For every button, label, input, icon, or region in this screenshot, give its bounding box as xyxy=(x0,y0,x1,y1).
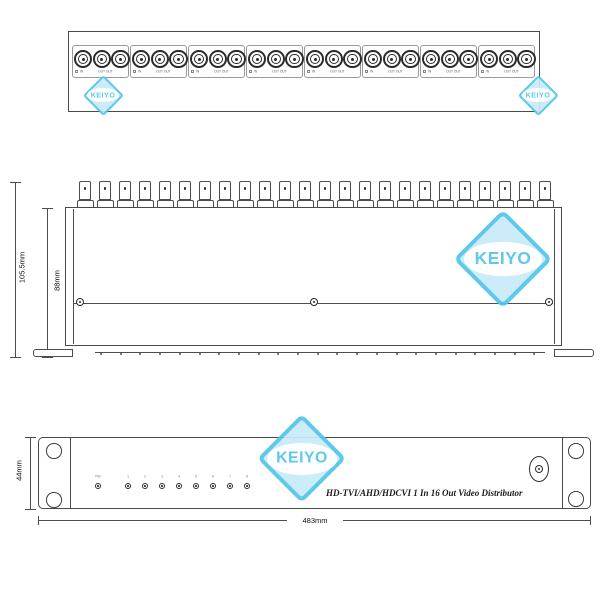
led-dot xyxy=(178,485,180,487)
led-dot xyxy=(212,485,214,487)
keiyo-logo: KEIYO xyxy=(518,75,558,115)
led-dot xyxy=(229,485,231,487)
bottom-plate-line xyxy=(95,352,545,353)
keiyo-logo-text: KEIYO xyxy=(258,450,346,468)
channel-led-label: 6 xyxy=(209,475,216,479)
dim-tick xyxy=(38,516,39,525)
mounting-flange-right xyxy=(554,349,594,357)
channel-led-label: 7 xyxy=(226,475,233,479)
channel-led-label: 8 xyxy=(243,475,250,479)
bottom-screw-dot xyxy=(179,353,181,355)
led-dot xyxy=(127,485,129,487)
bottom-screw-dot xyxy=(435,353,437,355)
bottom-screw-dot xyxy=(297,353,299,355)
bottom-screw-dot xyxy=(514,353,516,355)
rack-mount-hole xyxy=(46,492,62,508)
bottom-screw-dot xyxy=(317,353,319,355)
dim-line-front-height xyxy=(30,437,31,509)
bottom-screw-dot xyxy=(238,353,240,355)
channel-led-label: 3 xyxy=(158,475,165,479)
channel-led-label: 4 xyxy=(175,475,182,479)
channel-led-label: 5 xyxy=(192,475,199,479)
led-dot xyxy=(246,485,248,487)
rack-ear-separator-right xyxy=(562,438,563,508)
chassis-inner-wall-right xyxy=(554,209,555,344)
bottom-screw-dot xyxy=(100,353,102,355)
bottom-screw-dot xyxy=(455,353,457,355)
dim-tick xyxy=(25,437,36,438)
keiyo-logo: KEIYO xyxy=(455,211,552,308)
chassis-inner-wall-left xyxy=(73,209,74,344)
keiyo-logo-text: KEIYO xyxy=(518,90,558,99)
keiyo-logo-text: KEIYO xyxy=(455,248,552,269)
bottom-screw-dot xyxy=(199,353,201,355)
led-dot xyxy=(161,485,163,487)
channel-led-label: 2 xyxy=(141,475,148,479)
channel-led-label: 1 xyxy=(124,475,131,479)
keiyo-logo-text: KEIYO xyxy=(83,90,123,99)
bottom-screw-dot xyxy=(120,353,122,355)
bottom-screw-dot xyxy=(356,353,358,355)
bottom-screw-dot xyxy=(376,353,378,355)
bottom-screw-dot xyxy=(159,353,161,355)
led-dot xyxy=(144,485,146,487)
led-dot xyxy=(195,485,197,487)
led-dot xyxy=(97,485,99,487)
keiyo-logo: KEIYO xyxy=(83,75,123,115)
power-led-label: PW xyxy=(94,475,101,479)
bottom-screw-dot xyxy=(494,353,496,355)
bottom-screw-dot xyxy=(258,353,260,355)
bottom-screw-dot xyxy=(218,353,220,355)
bottom-screw-dot xyxy=(415,353,417,355)
mounting-flange-left xyxy=(33,349,73,357)
dim-label-front-height: 44mm xyxy=(15,446,24,496)
dim-tick xyxy=(590,516,591,525)
rack-ear-separator-left xyxy=(70,438,71,508)
rack-mount-hole xyxy=(568,491,584,507)
rack-mount-hole xyxy=(46,443,62,459)
dim-tick xyxy=(25,509,36,510)
dim-label-front-width: 483mm xyxy=(287,516,343,525)
bottom-screw-dot xyxy=(396,353,398,355)
product-title-text: HD-TVI/AHD/HDCVI 1 In 16 Out Video Distr… xyxy=(326,488,523,498)
rack-mount-hole xyxy=(568,443,584,459)
